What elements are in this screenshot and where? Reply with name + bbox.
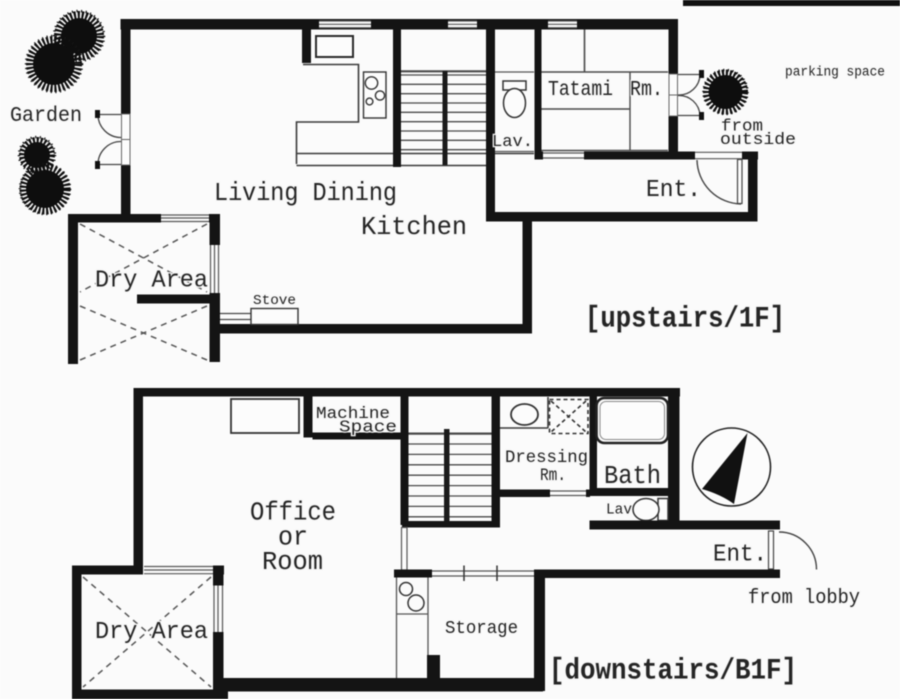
svg-text:parking space: parking space [785, 66, 885, 81]
svg-text:Rm.: Rm. [630, 79, 663, 102]
svg-text:outside: outside [720, 131, 796, 150]
svg-text:Garden: Garden [10, 104, 82, 128]
svg-text:Dry Area: Dry Area [95, 268, 208, 295]
svg-text:Tatami: Tatami [548, 79, 613, 102]
svg-text:Room: Room [262, 548, 323, 577]
svg-text:Ent.: Ent. [646, 177, 701, 204]
svg-text:Dressing: Dressing [505, 448, 588, 468]
svg-text:Storage: Storage [445, 618, 518, 639]
svg-text:Ent.: Ent. [713, 542, 767, 569]
svg-text:[upstairs/1F]: [upstairs/1F] [585, 303, 785, 337]
svg-text:from lobby: from lobby [748, 587, 860, 610]
svg-text:Kitchen: Kitchen [361, 212, 467, 242]
svg-text:Stove: Stove [253, 293, 296, 309]
svg-text:Bath: Bath [604, 462, 661, 491]
svg-text:Rm.: Rm. [540, 466, 566, 486]
svg-text:Space: Space [339, 419, 397, 437]
svg-text:Lav: Lav [606, 502, 632, 519]
svg-text:Living Dining: Living Dining [214, 178, 397, 208]
svg-text:Dry Area: Dry Area [95, 619, 208, 646]
svg-text:Lav.: Lav. [492, 133, 533, 152]
svg-text:[downstairs/B1F]: [downstairs/B1F] [549, 655, 797, 689]
